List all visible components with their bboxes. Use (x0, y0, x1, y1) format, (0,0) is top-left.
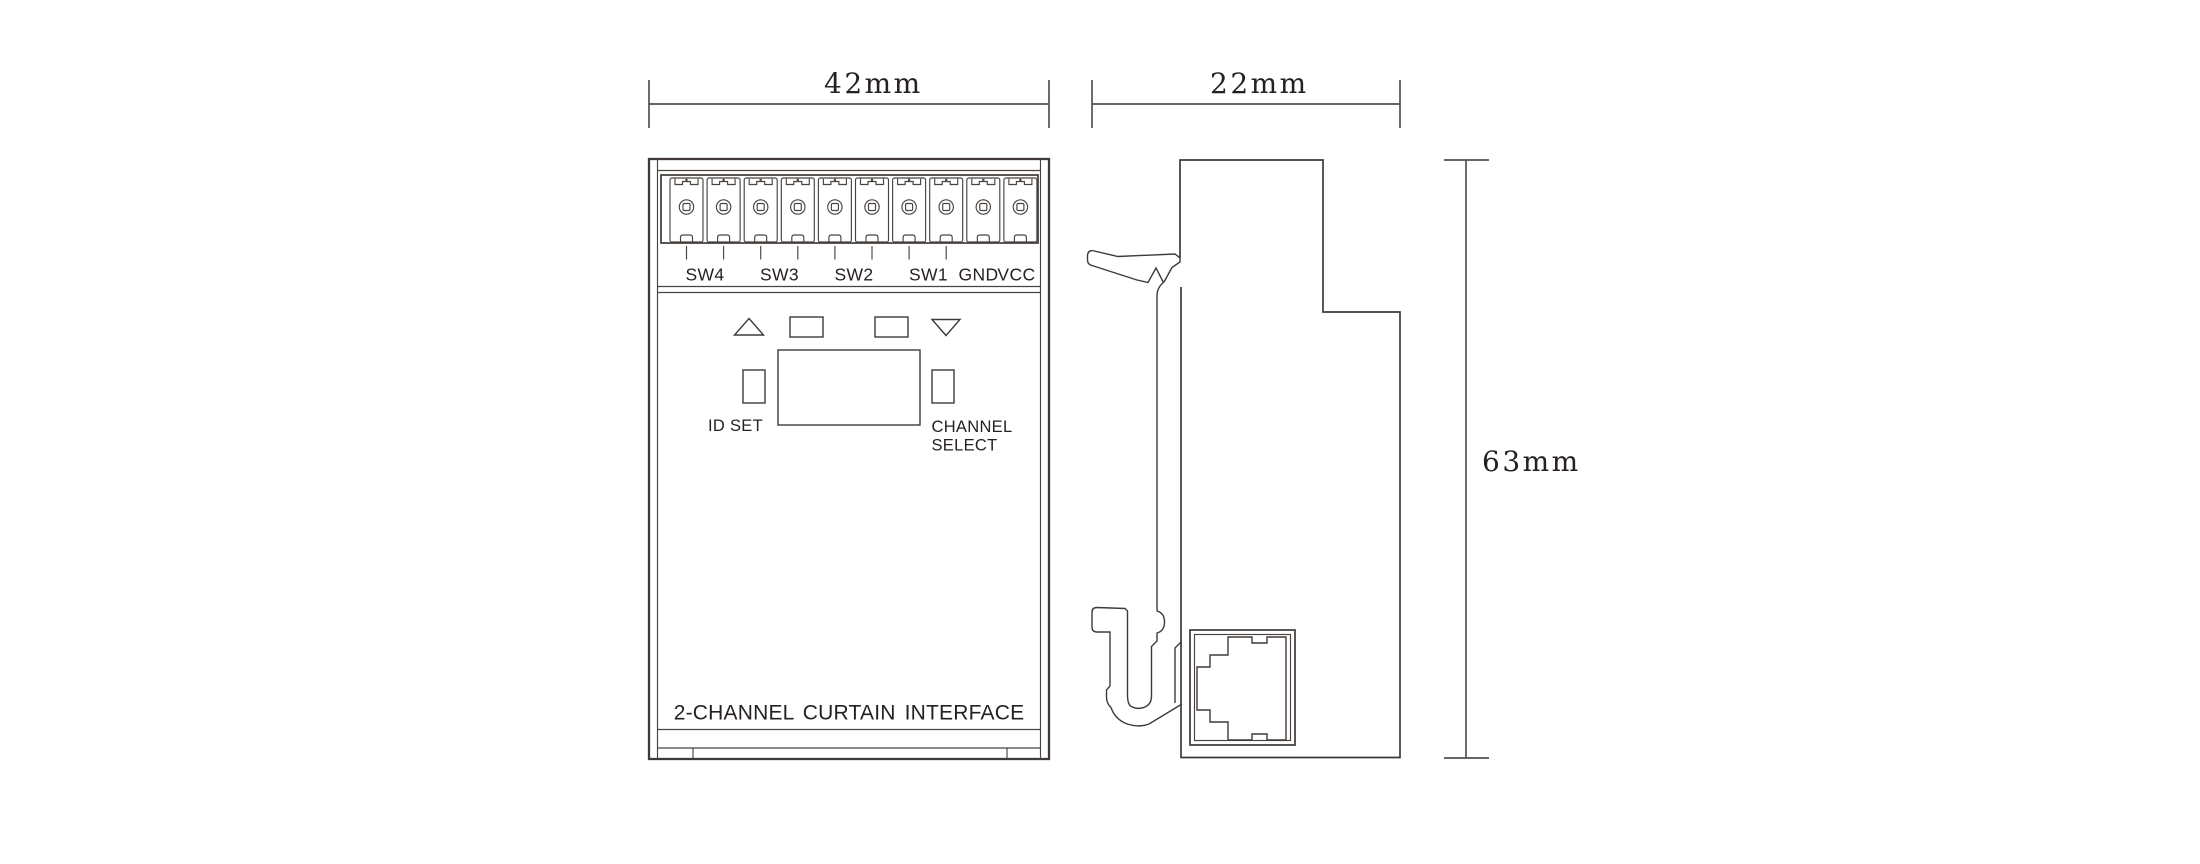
terminal-tab-left (749, 179, 760, 185)
terminal-block-outline (661, 175, 1038, 243)
screw-terminal-icon (716, 200, 730, 214)
screw-slot-icon (683, 204, 690, 211)
screw-slot-icon (720, 204, 727, 211)
din-rail-clip (1088, 251, 1183, 726)
dimension-63mm: 63mm (1444, 160, 1581, 758)
terminal-tab-right (798, 179, 809, 185)
terminal-labels: SW4 SW3 SW2 SW1 GND VCC (685, 265, 1035, 285)
channel-select-label-line2: SELECT (932, 437, 998, 455)
screw-slot-icon (831, 204, 838, 211)
technical-drawing-canvas: 42mm 22mm 63mm SW4 SW3 SW2 SW1 GND (0, 0, 2200, 864)
screw-terminal-icon (679, 200, 693, 214)
terminal-tab-left (786, 179, 797, 185)
terminal-slot (670, 178, 703, 242)
terminal-label-gnd: GND (958, 265, 998, 285)
screw-terminal-icon (902, 200, 916, 214)
screw-terminal-icon (865, 200, 879, 214)
panel-button-left (790, 317, 823, 337)
terminal-label-sw1: SW1 (909, 265, 948, 285)
up-arrow-icon (735, 319, 764, 336)
terminal-bottom-notch (940, 235, 952, 242)
dimension-22mm: 22mm (1092, 67, 1400, 128)
terminal-tab-left (823, 179, 834, 185)
terminal-tab-left (861, 179, 872, 185)
terminal-tab-left (712, 179, 723, 185)
terminal-bottom-notch (681, 235, 693, 242)
screw-slot-icon (1017, 204, 1024, 211)
panel-button-right (875, 317, 908, 337)
terminal-bottom-notch (1014, 235, 1026, 242)
id-set-label: ID SET (708, 417, 763, 435)
terminal-tab-left (1009, 179, 1020, 185)
terminal-tab-right (724, 179, 735, 185)
terminal-bottom-notch (718, 235, 730, 242)
terminal-slot (1004, 178, 1037, 242)
terminal-tab-right (984, 179, 995, 185)
rj45-socket-icon (1197, 637, 1286, 740)
terminal-slot (707, 178, 740, 242)
terminal-slot-group (670, 178, 1037, 242)
screw-terminal-icon (1013, 200, 1027, 214)
screw-terminal-icon (754, 200, 768, 214)
terminal-block (661, 175, 1038, 260)
terminal-tab-left (675, 179, 686, 185)
screw-terminal-icon (828, 200, 842, 214)
display-window (778, 350, 920, 425)
front-view: SW4 SW3 SW2 SW1 GND VCC ID SET CHANNEL S… (649, 159, 1049, 759)
id-set-button (743, 370, 765, 403)
terminal-tab-left (935, 179, 946, 185)
screw-slot-icon (906, 204, 913, 211)
down-arrow-icon (932, 320, 960, 336)
enclosure-outline (649, 159, 1049, 759)
terminal-pointer-ticks (687, 246, 947, 260)
terminal-slot (893, 178, 926, 242)
terminal-tab-right (910, 179, 921, 185)
dimension-label-side-width: 22mm (1210, 67, 1309, 100)
terminal-label-sw4: SW4 (685, 265, 724, 285)
screw-terminal-icon (939, 200, 953, 214)
din-clip-lever-top-edge (1092, 251, 1180, 283)
screw-slot-icon (757, 204, 764, 211)
terminal-tab-right (1021, 179, 1032, 185)
dimension-label-front-width: 42mm (824, 67, 923, 100)
dimension-drawing: 42mm 22mm 63mm SW4 SW3 SW2 SW1 GND (0, 0, 2200, 864)
terminal-bottom-notch (829, 235, 841, 242)
terminal-label-sw3: SW3 (760, 265, 799, 285)
connector-housing-outer (1190, 630, 1295, 745)
screw-slot-icon (794, 204, 801, 211)
side-view (1088, 160, 1401, 758)
terminal-bottom-notch (792, 235, 804, 242)
terminal-tab-right (947, 179, 958, 185)
terminal-slot (818, 178, 851, 242)
screw-slot-icon (869, 204, 876, 211)
dimension-label-height: 63mm (1482, 445, 1581, 478)
product-name-label: 2-CHANNEL CURTAIN INTERFACE (674, 702, 1025, 725)
terminal-slot (967, 178, 1000, 242)
terminal-tab-left (972, 179, 983, 185)
control-panel: ID SET CHANNEL SELECT (708, 317, 1012, 455)
terminal-tab-left (898, 179, 909, 185)
connector-housing-inner (1195, 635, 1291, 741)
terminal-label-vcc: VCC (997, 265, 1035, 285)
terminal-tab-right (873, 179, 884, 185)
terminal-tab-right (761, 179, 772, 185)
din-clip-hook-arm-edge (1175, 642, 1181, 703)
terminal-bottom-notch (866, 235, 878, 242)
channel-select-button (932, 370, 954, 403)
terminal-bottom-notch (755, 235, 767, 242)
channel-select-label-line1: CHANNEL (932, 418, 1013, 436)
terminal-slot (781, 178, 814, 242)
dimension-42mm: 42mm (649, 67, 1049, 128)
screw-slot-icon (980, 204, 987, 211)
screw-terminal-icon (976, 200, 990, 214)
din-clip-spring-and-hook (1088, 251, 1183, 726)
screw-terminal-icon (791, 200, 805, 214)
bus-connector (1190, 630, 1295, 745)
terminal-slot (744, 178, 777, 242)
screw-slot-icon (943, 204, 950, 211)
terminal-slot (930, 178, 963, 242)
terminal-bottom-notch (977, 235, 989, 242)
terminal-tab-right (687, 179, 698, 185)
terminal-label-sw2: SW2 (834, 265, 873, 285)
terminal-slot (856, 178, 889, 242)
terminal-bottom-notch (903, 235, 915, 242)
terminal-tab-right (835, 179, 846, 185)
